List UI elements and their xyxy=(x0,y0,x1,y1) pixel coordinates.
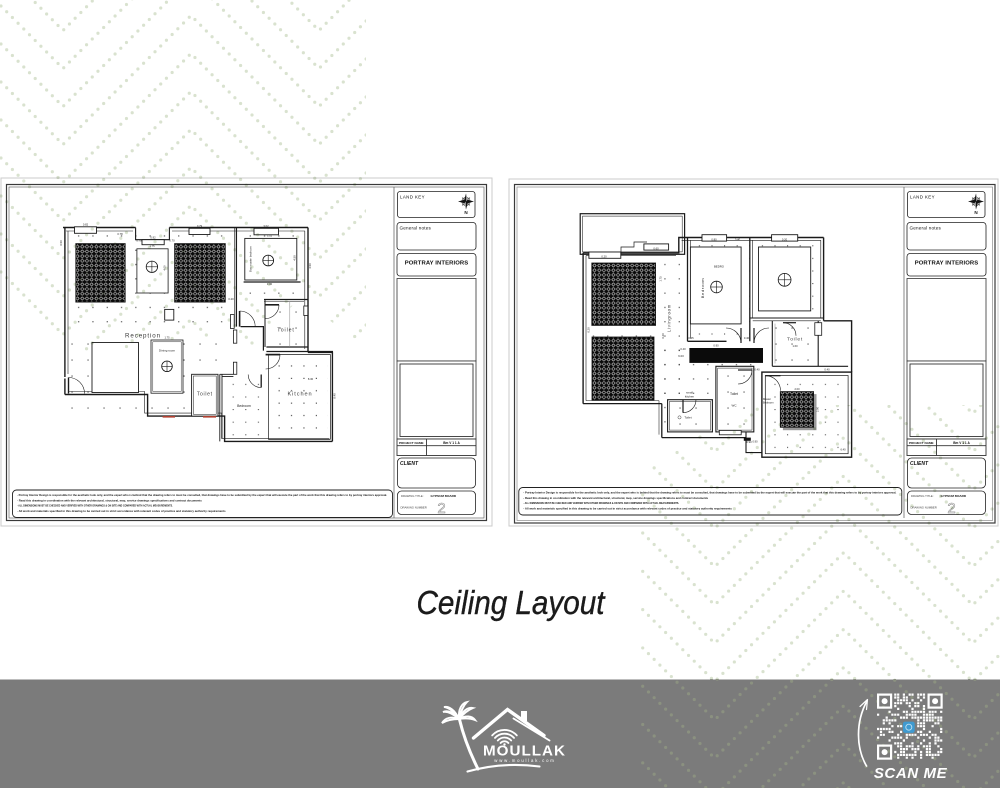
svg-text:0.20: 0.20 xyxy=(228,297,234,301)
svg-text:www.moullak.com: www.moullak.com xyxy=(494,758,555,763)
svg-text:0.80: 0.80 xyxy=(711,237,717,241)
svg-text:2.00: 2.00 xyxy=(794,387,800,391)
svg-text:2: 2 xyxy=(437,500,445,517)
svg-text:0.78: 0.78 xyxy=(117,232,123,236)
svg-text:Bedroom: Bedroom xyxy=(763,400,774,404)
svg-text:GYPSUM BOARD: GYPSUM BOARD xyxy=(941,494,967,498)
svg-text:Kitchen: Kitchen xyxy=(288,392,313,398)
svg-text:0.90: 0.90 xyxy=(752,440,758,444)
svg-text:DRAWING TITLE :: DRAWING TITLE : xyxy=(401,494,425,498)
svg-text:SCAN ME: SCAN ME xyxy=(874,765,948,782)
svg-text:0.20: 0.20 xyxy=(587,327,591,333)
svg-text:- Portray Interior Design is r: - Portray Interior Design is responsible… xyxy=(523,491,896,495)
svg-text:GYPSUM BOARD: GYPSUM BOARD xyxy=(431,494,457,498)
svg-text:Ceiling Layout: Ceiling Layout xyxy=(417,584,607,621)
svg-text:Reception: Reception xyxy=(125,333,161,340)
svg-text:General notes: General notes xyxy=(910,226,942,231)
svg-text:0.20: 0.20 xyxy=(661,333,665,339)
svg-text:- Read this drawing in coordin: - Read this drawing in coordination with… xyxy=(17,498,202,502)
svg-text:0.40: 0.40 xyxy=(735,237,741,241)
svg-text:4.50: 4.50 xyxy=(293,255,297,261)
svg-text:0.20: 0.20 xyxy=(782,237,788,241)
svg-text:0.40: 0.40 xyxy=(744,336,750,340)
svg-text:0.40: 0.40 xyxy=(754,367,760,371)
svg-text:0.90: 0.90 xyxy=(713,343,719,347)
svg-text:kitchen: kitchen xyxy=(685,394,695,398)
svg-text:0.82: 0.82 xyxy=(83,223,89,227)
svg-text:Livingroom: Livingroom xyxy=(667,304,672,332)
svg-text:- All work and materials speci: - All work and materials specified in th… xyxy=(523,506,732,510)
svg-text:PORTRAY INTERIORS: PORTRAY INTERIORS xyxy=(915,261,979,267)
svg-text:0.40: 0.40 xyxy=(824,367,830,371)
svg-text:- Read this drawing in coordin: - Read this drawing in coordination with… xyxy=(523,496,708,500)
svg-text:Bedroom: Bedroom xyxy=(700,278,705,298)
svg-text:1.75: 1.75 xyxy=(164,336,170,340)
svg-text:Bm V 1 1 A: Bm V 1 1 A xyxy=(443,441,460,445)
svg-text:4.50: 4.50 xyxy=(308,263,312,269)
svg-text:Bm V 1 1 A: Bm V 1 1 A xyxy=(953,441,970,445)
svg-text:2.00: 2.00 xyxy=(816,406,820,412)
svg-text:PROJECT NAME: PROJECT NAME xyxy=(909,441,934,445)
svg-text:Dining room: Dining room xyxy=(159,349,176,353)
svg-text:3.02: 3.02 xyxy=(263,224,269,228)
svg-text:1.75: 1.75 xyxy=(659,276,663,282)
svg-text:6.40: 6.40 xyxy=(840,448,846,452)
svg-text:BEDRO: BEDRO xyxy=(714,265,725,269)
svg-text:DRAWING NUMBER: DRAWING NUMBER xyxy=(911,506,937,510)
svg-text:0.90: 0.90 xyxy=(746,440,752,444)
svg-text:Toilet: Toilet xyxy=(684,416,691,420)
svg-text:0.60: 0.60 xyxy=(653,246,659,250)
svg-text:0.70: 0.70 xyxy=(136,239,142,243)
svg-text:6.03: 6.03 xyxy=(678,354,684,358)
svg-text:0.45: 0.45 xyxy=(688,336,694,340)
svg-text:0.50: 0.50 xyxy=(59,240,63,246)
svg-text:PROJECT NAME: PROJECT NAME xyxy=(399,441,424,445)
svg-text:- Portray Interior Design is r: - Portray Interior Design is responsible… xyxy=(17,493,387,497)
svg-text:0.79: 0.79 xyxy=(197,224,203,228)
svg-text:PORTRAY INTERIORS: PORTRAY INTERIORS xyxy=(405,261,469,267)
svg-text:CLIENT: CLIENT xyxy=(400,461,419,467)
svg-text:0.40: 0.40 xyxy=(680,347,686,351)
svg-text:0.20: 0.20 xyxy=(601,254,607,258)
svg-text:1.60: 1.60 xyxy=(792,344,798,348)
svg-text:Toilet: Toilet xyxy=(730,392,738,396)
svg-text:- ALL DIMENSIONS MUST BE CHECK: - ALL DIMENSIONS MUST BE CHECKED AND VER… xyxy=(523,501,679,505)
svg-text:0.92: 0.92 xyxy=(150,236,156,240)
svg-text:8.30: 8.30 xyxy=(308,377,314,381)
svg-text:LAND KEY: LAND KEY xyxy=(910,195,935,200)
svg-text:LAND KEY: LAND KEY xyxy=(400,195,425,200)
svg-text:WC: WC xyxy=(732,404,738,408)
svg-text:3.02: 3.02 xyxy=(267,233,273,237)
svg-text:0.70: 0.70 xyxy=(169,239,175,243)
svg-text:Toilet: Toilet xyxy=(277,328,295,334)
svg-text:- All work and materials speci: - All work and materials specified in th… xyxy=(17,509,226,513)
svg-text:Toilet: Toilet xyxy=(787,337,803,343)
svg-text:Toilet: Toilet xyxy=(197,392,213,398)
svg-text:DRAWING TITLE :: DRAWING TITLE : xyxy=(911,494,935,498)
svg-text:Bedroom: Bedroom xyxy=(237,404,251,408)
svg-text:8.40: 8.40 xyxy=(333,393,337,399)
svg-text:DRAWING NUMBER: DRAWING NUMBER xyxy=(401,506,427,510)
svg-text:General notes: General notes xyxy=(400,226,432,231)
svg-text:Master: Master xyxy=(763,397,771,401)
svg-text:- ALL DIMENSIONS MUST BE CHECK: - ALL DIMENSIONS MUST BE CHECKED AND VER… xyxy=(17,504,173,508)
svg-text:CLIENT: CLIENT xyxy=(910,461,929,467)
